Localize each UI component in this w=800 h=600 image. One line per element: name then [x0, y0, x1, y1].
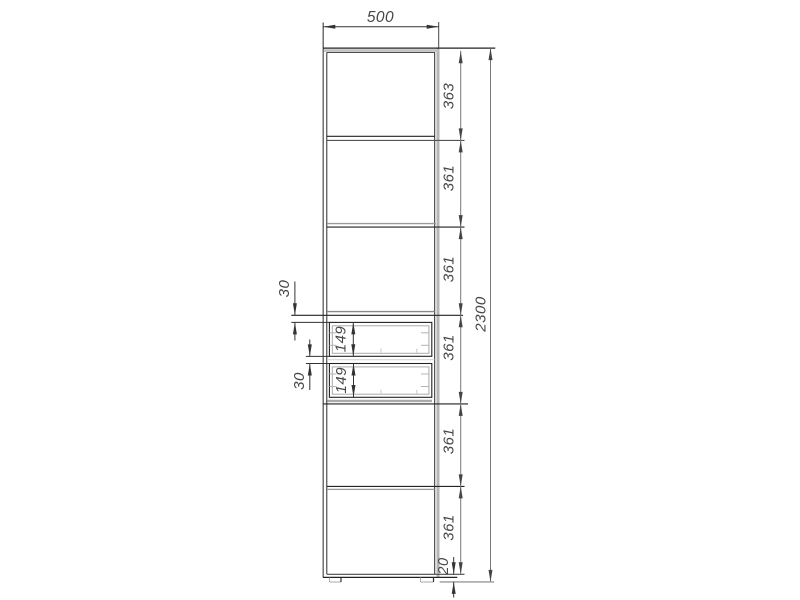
- svg-text:500: 500: [367, 9, 394, 26]
- svg-text:20: 20: [436, 557, 452, 575]
- svg-text:149: 149: [332, 326, 349, 353]
- svg-text:361: 361: [441, 428, 458, 455]
- svg-text:361: 361: [441, 165, 458, 192]
- svg-text:2300: 2300: [472, 296, 489, 333]
- svg-text:30: 30: [276, 280, 293, 298]
- svg-text:363: 363: [441, 83, 458, 110]
- svg-text:30: 30: [291, 372, 308, 390]
- svg-text:149: 149: [333, 367, 350, 394]
- svg-text:361: 361: [441, 514, 458, 541]
- svg-text:361: 361: [441, 334, 458, 361]
- svg-text:361: 361: [441, 256, 458, 283]
